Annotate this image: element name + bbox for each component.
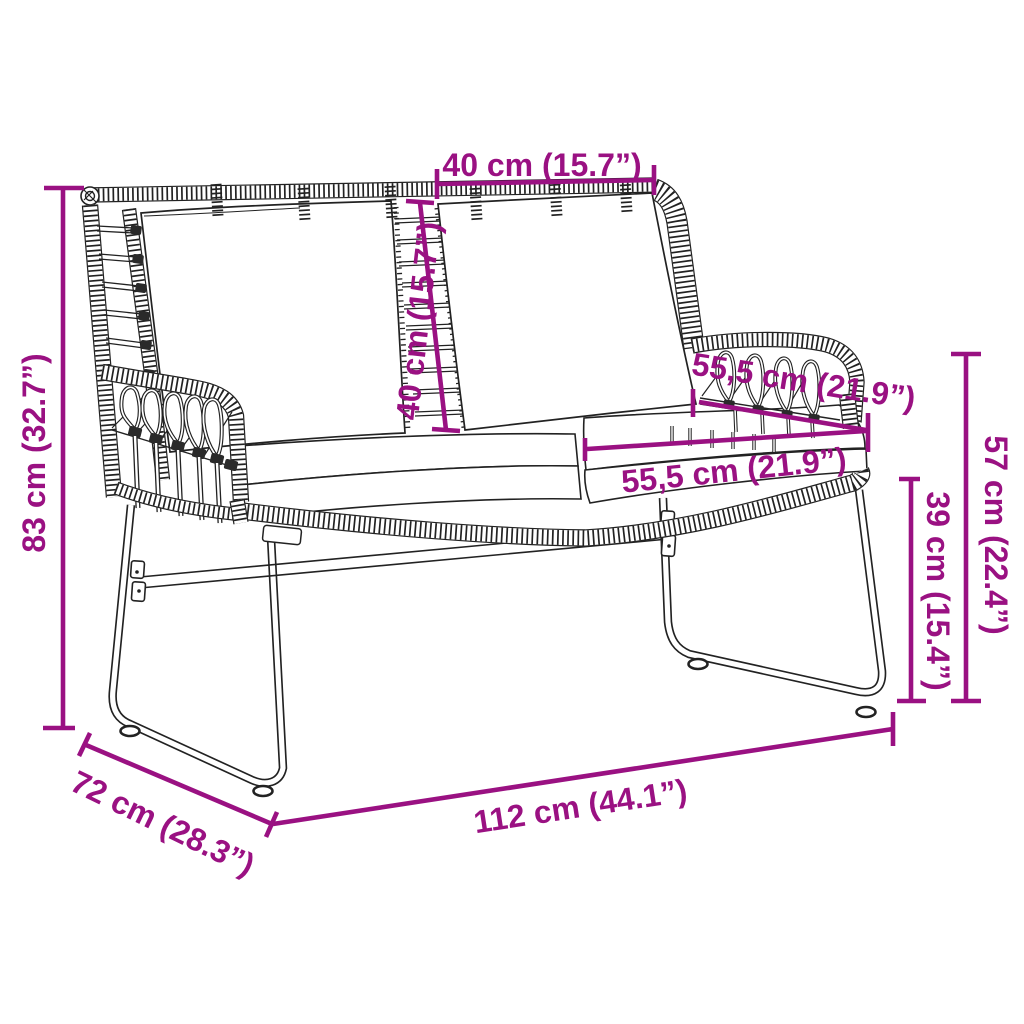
svg-text:57 cm (22.4”): 57 cm (22.4”) — [978, 435, 1014, 634]
svg-text:39 cm (15.4”): 39 cm (15.4”) — [920, 491, 956, 690]
svg-text:83 cm (32.7”): 83 cm (32.7”) — [16, 353, 52, 552]
svg-text:40 cm (15.7”): 40 cm (15.7”) — [442, 147, 641, 183]
